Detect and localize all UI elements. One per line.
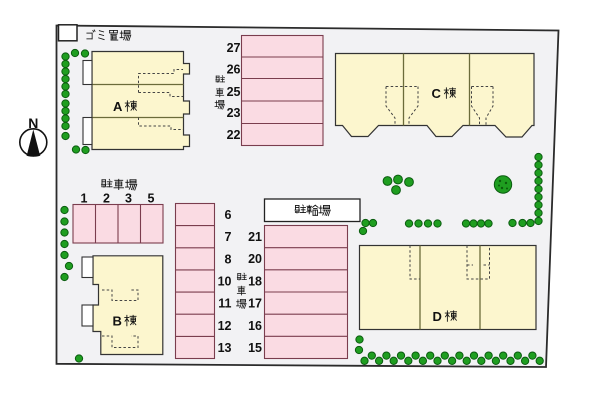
svg-text:D: D: [433, 309, 442, 324]
svg-text:3: 3: [125, 192, 132, 206]
svg-text:26: 26: [227, 62, 241, 76]
svg-text:22: 22: [227, 128, 241, 142]
svg-text:25: 25: [227, 85, 241, 99]
svg-text:23: 23: [227, 106, 241, 120]
svg-text:2: 2: [103, 192, 110, 206]
svg-text:8: 8: [225, 252, 232, 266]
svg-text:7: 7: [225, 230, 232, 244]
svg-text:18: 18: [248, 274, 262, 288]
svg-text:A: A: [113, 99, 123, 114]
svg-text:21: 21: [248, 230, 262, 244]
svg-text:1: 1: [81, 192, 88, 206]
svg-text:27: 27: [227, 41, 241, 55]
svg-text:16: 16: [248, 319, 262, 333]
svg-text:6: 6: [225, 208, 232, 222]
svg-text:13: 13: [218, 341, 232, 355]
svg-text:10: 10: [218, 275, 232, 289]
svg-text:17: 17: [248, 297, 262, 311]
svg-text:C: C: [432, 86, 442, 101]
svg-text:N: N: [28, 115, 38, 131]
svg-text:12: 12: [218, 319, 232, 333]
svg-text:11: 11: [218, 297, 231, 311]
svg-text:20: 20: [248, 252, 262, 266]
svg-text:15: 15: [248, 341, 262, 355]
svg-text:B: B: [113, 314, 122, 329]
svg-text:5: 5: [148, 192, 155, 206]
